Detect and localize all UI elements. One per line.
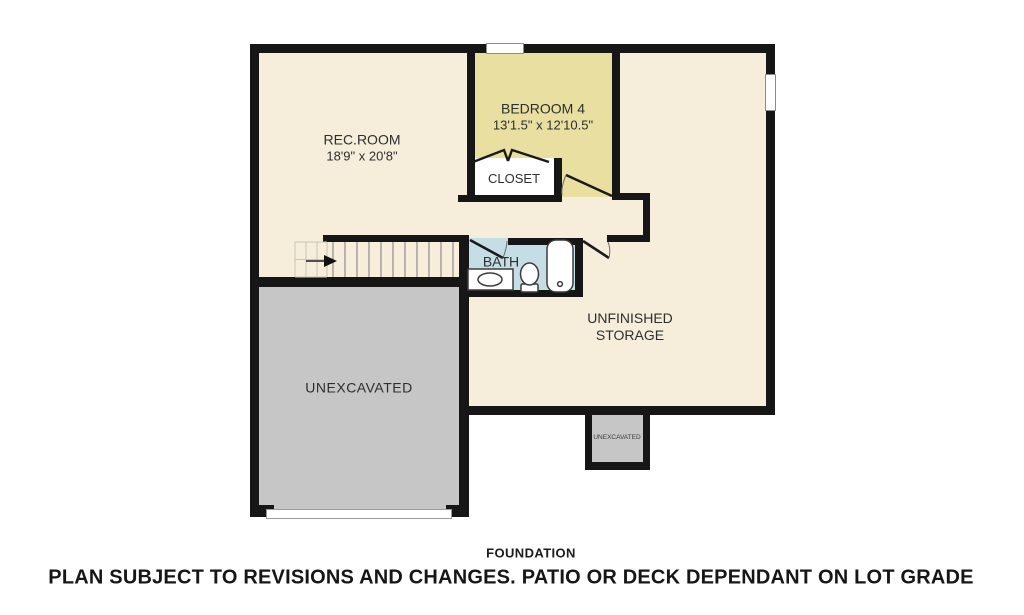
- room-label-unexcavated: UNEXCAVATED: [305, 379, 412, 396]
- room-label-bedroom-4: BEDROOM 4 13'1.5" x 12'10.5": [493, 101, 593, 134]
- plan-disclaimer: PLAN SUBJECT TO REVISIONS AND CHANGES. P…: [48, 567, 973, 590]
- unexcavated-area: [259, 287, 459, 509]
- wall-closet-right: [554, 158, 562, 202]
- wall-bedroom-right: [612, 52, 620, 200]
- rec-room-dimensions: 18'9" x 20'8": [324, 149, 401, 165]
- plan-title: FOUNDATION: [486, 546, 576, 561]
- bedroom-4-dimensions: 13'1.5" x 12'10.5": [493, 118, 593, 134]
- wall-bath-right: [575, 238, 583, 297]
- room-label-unexcavated-small: UNEXCAVATED: [593, 434, 640, 442]
- window-right: [765, 74, 776, 111]
- wall-bath-top: [508, 238, 577, 245]
- bedroom-4-name: BEDROOM 4: [493, 101, 593, 118]
- storage-label-line-2: STORAGE: [587, 327, 673, 344]
- room-label-closet: CLOSET: [488, 171, 540, 187]
- wall-closet-bottom: [458, 195, 562, 202]
- wall-hall-bottom: [607, 235, 650, 242]
- wall-bedroom-left: [467, 52, 475, 202]
- rec-room-name: REC.ROOM: [324, 132, 401, 149]
- wall-small-box-bottom: [585, 462, 650, 470]
- wall-unexcavated-top: [250, 277, 469, 287]
- unexcavated-opening-sill: [266, 509, 452, 519]
- foundation-floor-plan: REC.ROOM 18'9" x 20'8" BEDROOM 4 13'1.5"…: [0, 0, 1024, 615]
- storage-label-line-1: UNFINISHED: [587, 310, 673, 327]
- room-label-rec-room: REC.ROOM 18'9" x 20'8": [324, 132, 401, 165]
- window-top: [486, 43, 524, 54]
- room-label-bath: BATH: [483, 253, 519, 270]
- wall-outer-bottom: [459, 406, 775, 415]
- room-label-unfinished-storage: UNFINISHED STORAGE: [587, 310, 673, 344]
- wall-bath-bottom: [459, 290, 583, 297]
- wall-stairs-top: [323, 235, 469, 242]
